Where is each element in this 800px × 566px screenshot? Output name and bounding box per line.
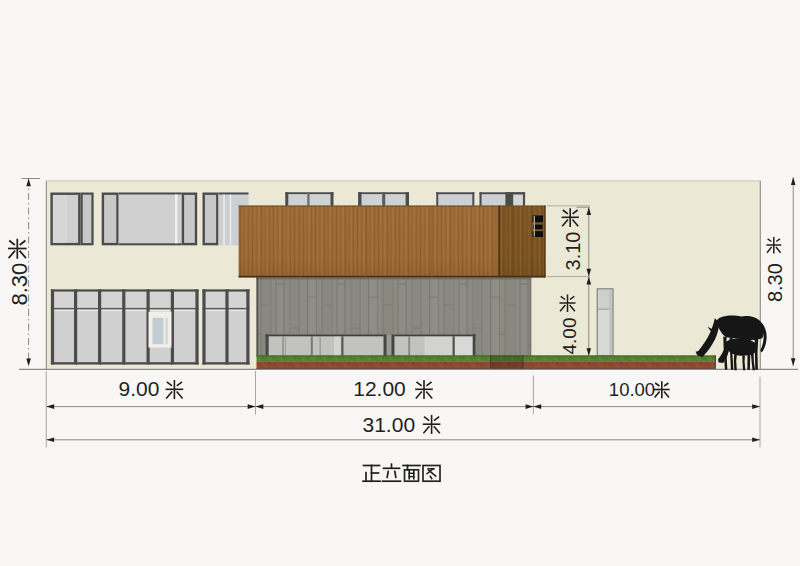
svg-text:12.00: 12.00 [353, 377, 406, 400]
svg-text:31.00: 31.00 [363, 413, 416, 436]
svg-text:3.10: 3.10 [562, 232, 584, 271]
svg-text:8.30: 8.30 [764, 263, 786, 302]
svg-text:10.00: 10.00 [609, 379, 655, 400]
svg-text:9.00: 9.00 [119, 377, 160, 400]
svg-text:8.30: 8.30 [7, 263, 32, 306]
svg-text:4.00: 4.00 [559, 318, 580, 355]
